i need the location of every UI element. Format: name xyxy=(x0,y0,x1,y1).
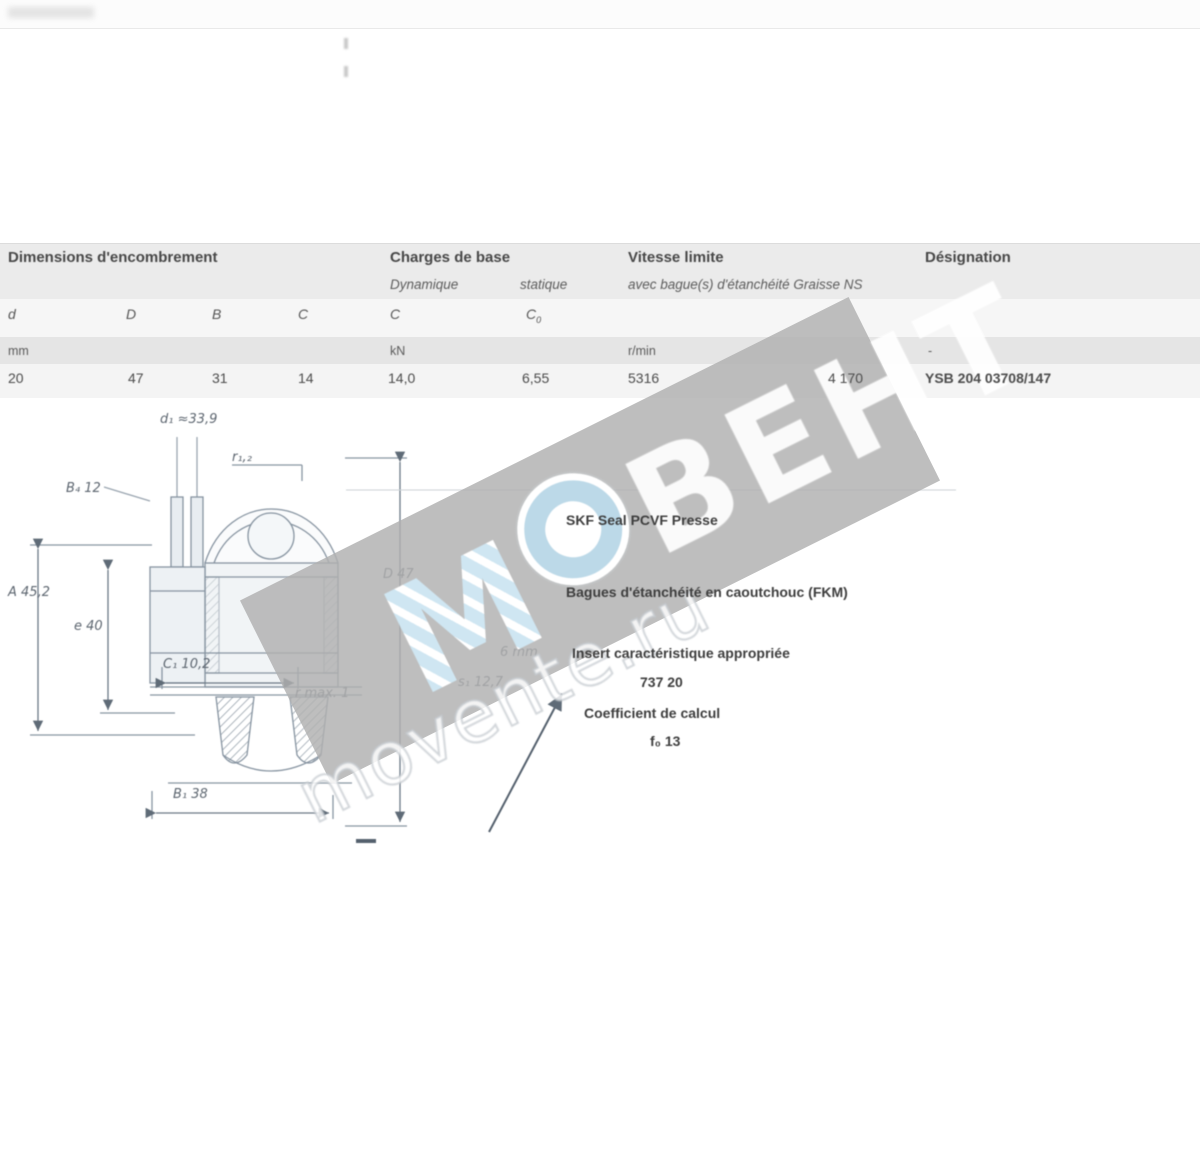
dim-label-r12: r₁,₂ xyxy=(232,450,252,465)
value-C: 14 xyxy=(298,370,314,386)
tick-mark xyxy=(344,38,348,49)
annotation-line-4: Coefficient de calcul xyxy=(584,705,720,721)
value-B: 31 xyxy=(212,370,228,386)
tick-mark xyxy=(344,66,348,77)
dim-label-e: e 40 xyxy=(74,619,103,634)
unit-rmin: r/min xyxy=(628,344,656,358)
unit-kn: kN xyxy=(390,344,405,358)
value-speed-2: 4 170 xyxy=(828,370,863,386)
symbol-C0: C0 xyxy=(526,306,541,325)
annotation-line-3: Insert caractéristique appropriée xyxy=(572,645,790,661)
value-designation: YSB 204 03708/147 xyxy=(925,370,1051,386)
annotation-line-1: SKF Seal PCVF Presse xyxy=(566,512,718,528)
symbol-B: B xyxy=(212,306,221,322)
col-group-speed: Vitesse limite xyxy=(628,249,724,266)
value-d: 20 xyxy=(8,370,24,386)
subheader-static: statique xyxy=(520,277,567,292)
dim-label-b1: B₁ 38 xyxy=(173,787,208,802)
dim-label-a: A 45,2 xyxy=(8,585,50,600)
subheader-dynamic: Dynamique xyxy=(390,277,458,292)
top-bar xyxy=(0,0,1200,29)
annotation-line-3-value: 737 20 xyxy=(640,674,683,690)
col-group-dimensions: Dimensions d'encombrement xyxy=(8,249,217,266)
symbol-C-dyn: C xyxy=(390,306,400,322)
scanned-datasheet: { "table": { "group1": "Dimensions d'enc… xyxy=(0,0,1200,1165)
symbol-C0-sub: 0 xyxy=(536,315,541,325)
symbol-C0-base: C xyxy=(526,306,536,322)
col-group-designation: Désignation xyxy=(925,249,1011,266)
symbol-C: C xyxy=(298,306,308,322)
value-C0: 6,55 xyxy=(522,370,549,386)
top-smudge xyxy=(8,7,94,18)
subheader-speed-condition: avec bague(s) d'étanchéité Graisse NS xyxy=(628,277,862,292)
value-D: 47 xyxy=(128,370,144,386)
value-speed-1: 5316 xyxy=(628,370,659,386)
dim-label-c1: C₁ 10,2 xyxy=(163,657,210,672)
col-group-load-ratings: Charges de base xyxy=(390,249,510,266)
unit-dash: - xyxy=(928,344,932,358)
dim-label-d1: d₁ ≈33,9 xyxy=(160,412,217,427)
symbol-d: d xyxy=(8,306,16,322)
annotation-line-2: Bagues d'étanchéité en caoutchouc (FKM) xyxy=(566,584,848,600)
annotation-line-4-value: f₀ 13 xyxy=(650,733,680,749)
watermark-logo-ring xyxy=(508,463,639,594)
value-C-dyn: 14,0 xyxy=(388,370,415,386)
dim-label-b4: B₄ 12 xyxy=(66,481,101,496)
symbol-D: D xyxy=(126,306,136,322)
unit-mm: mm xyxy=(8,344,29,358)
